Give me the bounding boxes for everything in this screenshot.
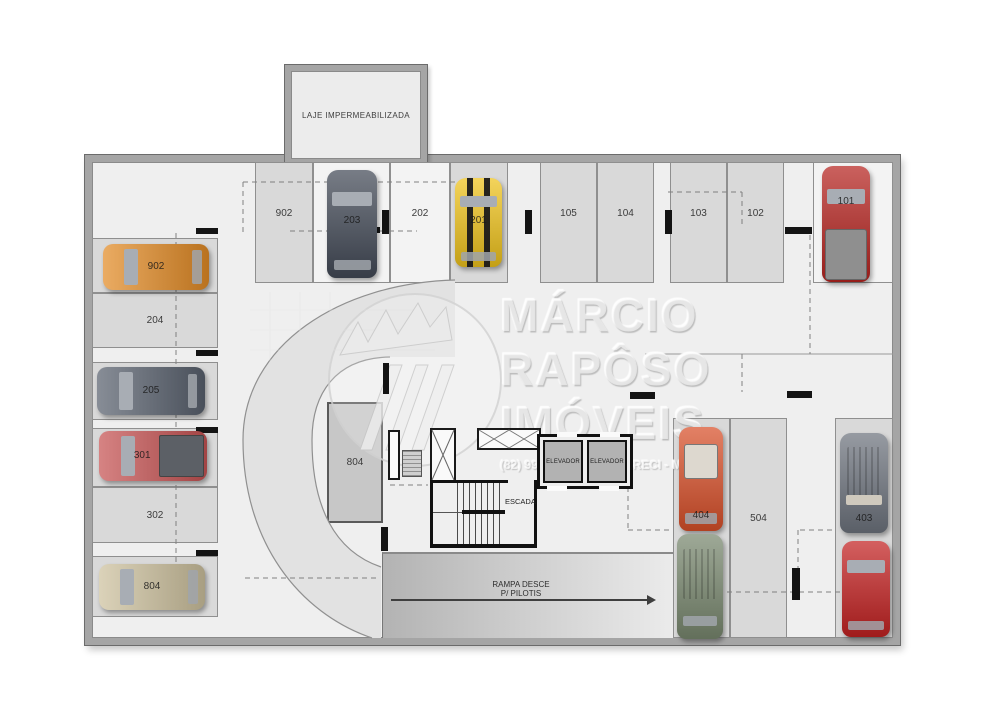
service-door (388, 430, 400, 480)
elevator-shaft: ELEVADOR ELEVADOR (537, 434, 633, 489)
car-201: 201 (455, 178, 502, 267)
stair-rail (462, 510, 505, 514)
elevator-2: ELEVADOR (587, 440, 627, 483)
parking-space-102: 102 (727, 162, 784, 283)
pillar (383, 363, 389, 394)
garage-floor-plan: LAJE IMPERMEABILIZADA (0, 0, 1000, 707)
pillar (196, 350, 218, 356)
parking-space-104: 104 (597, 162, 654, 283)
shaft-x-mark-2 (477, 428, 541, 450)
roof-rack (683, 549, 716, 599)
pillar (525, 210, 532, 234)
shaft-x-mark (430, 428, 456, 482)
pillar (785, 227, 812, 234)
parking-space-504: 504 (730, 418, 787, 638)
car-trailer (825, 229, 867, 280)
car-205: 205 (97, 367, 205, 415)
car-windshield (332, 192, 372, 206)
ramp-direction-arrow (391, 599, 647, 601)
storage-space-804: 804 (327, 402, 383, 523)
car-101: 101 (822, 166, 870, 282)
pillar (665, 210, 672, 234)
waterproofed-slab: LAJE IMPERMEABILIZADA (285, 65, 427, 165)
elevator-vent (599, 486, 619, 491)
pillar (196, 228, 218, 234)
pillar (787, 391, 812, 398)
car-green-suv (677, 534, 723, 639)
parking-space-302: 302 (92, 487, 218, 543)
pillar (382, 210, 389, 234)
convertible-cockpit (684, 444, 717, 479)
roof-rack (847, 447, 882, 495)
parking-space-103: 103 (670, 162, 727, 283)
parking-space-105: 105 (540, 162, 597, 283)
pillar (196, 550, 218, 556)
car-804: 804 (99, 564, 205, 610)
car-902: 902 (103, 244, 209, 290)
stair-landing-line (433, 512, 462, 513)
parking-space-204: 204 (92, 293, 218, 348)
equipment-cart (402, 450, 422, 477)
car-404: 404 (679, 427, 723, 531)
parking-space-902-top: 902 (255, 162, 313, 283)
car-203: 203 (327, 170, 377, 278)
car-403: 403 (840, 433, 888, 533)
elevator-1: ELEVADOR (543, 440, 583, 483)
waterproofed-slab-label: LAJE IMPERMEABILIZADA (302, 111, 410, 120)
car-301: 301 (99, 431, 207, 481)
pillar (381, 527, 388, 551)
pillar (792, 568, 800, 600)
ramp-label: RAMPA DESCE P/ PILOTIS (441, 580, 601, 598)
stairs-label: ESCADA (505, 497, 536, 506)
car-red-coupe (842, 541, 890, 637)
parking-space-202: 202 (390, 162, 450, 283)
pillar (630, 392, 655, 399)
ramp-down: RAMPA DESCE P/ PILOTIS (382, 552, 673, 638)
elevator-vent (557, 432, 577, 437)
elevator-vent (547, 486, 567, 491)
elevator-vent (600, 432, 620, 437)
